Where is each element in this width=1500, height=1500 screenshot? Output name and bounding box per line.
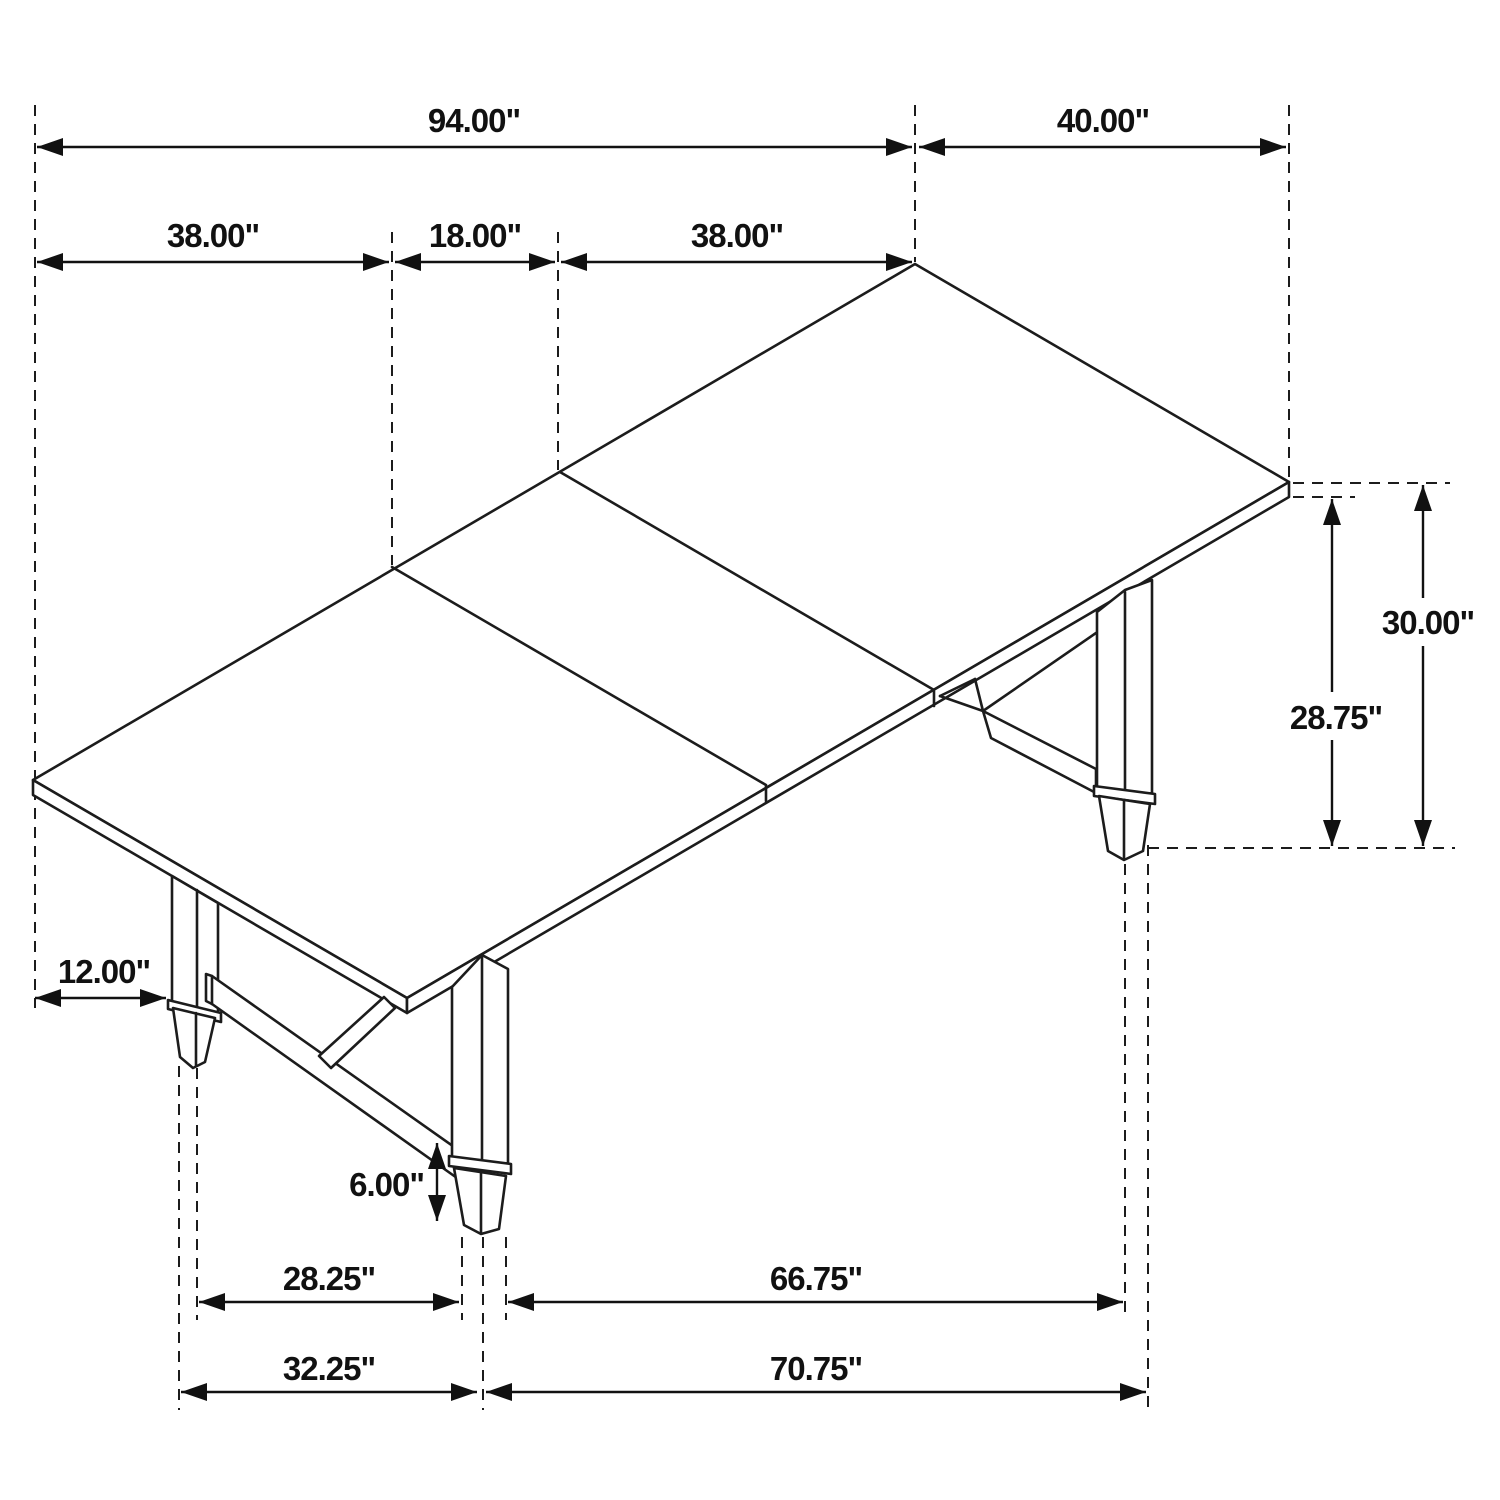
dim-label-foot-height: 6.00" <box>349 1166 424 1203</box>
front-apron-corner-edge <box>975 679 983 711</box>
dim-label-span-inner-left: 28.25" <box>283 1260 375 1297</box>
dim-label-section-right: 38.00" <box>691 217 783 254</box>
rear-left-leg <box>168 876 221 1068</box>
dim-label-span-inner-right: 66.75" <box>770 1260 862 1297</box>
dim-label-underside-height: 28.75" <box>1290 699 1382 736</box>
rear-left-leg-foot <box>173 1008 215 1068</box>
dim-label-leg-inset: 12.00" <box>58 953 150 990</box>
left-diagonal-brace <box>319 997 395 1068</box>
front-left-leg-body <box>452 955 508 1170</box>
dimension-drawing-canvas: 94.00" 40.00" 38.00" 18.00" 38.00" 12.00… <box>0 0 1500 1500</box>
dim-label-overall-height: 30.00" <box>1382 604 1474 641</box>
dim-label-span-outer-right: 70.75" <box>770 1350 862 1387</box>
dim-label-total-length: 94.00" <box>428 102 520 139</box>
dim-label-end-width: 40.00" <box>1057 102 1149 139</box>
dim-label-section-left: 38.00" <box>167 217 259 254</box>
dim-label-leaf: 18.00" <box>429 217 521 254</box>
table-dimension-diagram: 94.00" 40.00" 38.00" 18.00" 38.00" 12.00… <box>0 0 1500 1500</box>
front-right-leg <box>1094 580 1155 860</box>
front-left-leg <box>449 955 511 1234</box>
right-support-beam <box>983 711 1096 793</box>
dim-label-span-outer-left: 32.25" <box>283 1350 375 1387</box>
